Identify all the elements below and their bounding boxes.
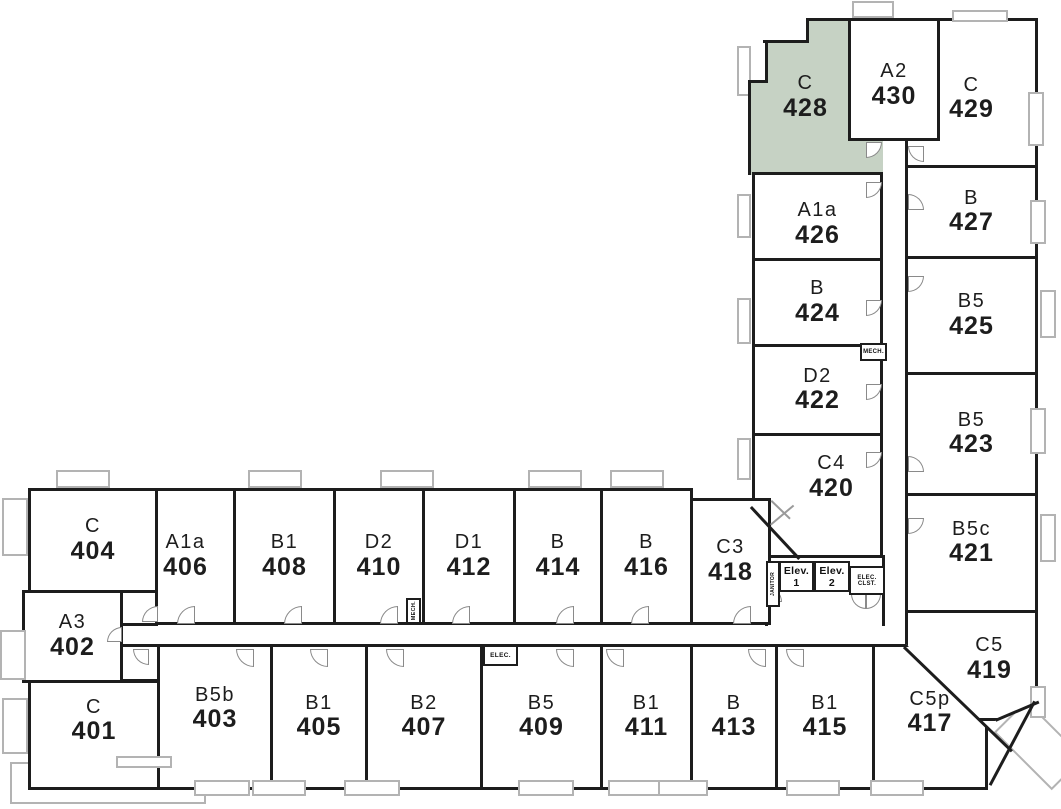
window	[1040, 290, 1056, 338]
window	[194, 780, 250, 796]
window	[952, 10, 1008, 22]
mech-closet-upper: MECH.	[860, 343, 887, 361]
unit-number: 413	[712, 714, 757, 741]
window	[56, 470, 110, 488]
window	[610, 470, 664, 488]
unit-number: 406	[163, 554, 208, 581]
window	[344, 780, 400, 796]
balcony-top	[852, 1, 894, 18]
window	[380, 470, 434, 488]
unit-type: B5b	[193, 685, 238, 707]
wall	[763, 40, 809, 43]
unit-number: 428	[783, 95, 828, 122]
window	[608, 780, 662, 796]
unit-number: 411	[625, 714, 668, 741]
window	[870, 780, 924, 796]
unit-406[interactable]: A1a406	[155, 488, 236, 625]
unit-label: C401	[72, 697, 117, 746]
unit-label: C429	[949, 75, 994, 124]
elevator-1: Elev. 1	[779, 561, 814, 592]
unit-426[interactable]: A1a426	[752, 172, 883, 261]
mech-closet-lower: MECH.	[406, 598, 421, 624]
unit-type: A2	[872, 61, 917, 83]
unit-425[interactable]: B5425	[905, 256, 1038, 375]
unit-type: B1	[262, 532, 307, 554]
unit-label: A1a426	[795, 200, 840, 249]
unit-number: 403	[193, 706, 238, 733]
floor-plan: C429C428A2430A1a426B424D2422C4420B427B54…	[0, 0, 1061, 809]
unit-label: C5419	[967, 635, 1012, 684]
unit-401[interactable]: C401	[28, 680, 160, 790]
unit-421[interactable]: B5c421	[905, 493, 1038, 613]
unit-type: B5	[949, 410, 994, 432]
unit-430[interactable]: A2430	[848, 18, 940, 141]
unit-number: 425	[949, 313, 994, 340]
unit-type: B	[949, 188, 994, 210]
window	[248, 470, 302, 488]
window	[737, 438, 751, 480]
unit-number: 409	[519, 714, 564, 741]
unit-label: B414	[536, 532, 581, 581]
unit-label: B1415	[803, 693, 848, 742]
unit-type: A1a	[163, 532, 208, 554]
unit-type: C4	[809, 453, 854, 475]
unit-label: C404	[71, 516, 116, 565]
unit-411[interactable]: B1411	[600, 644, 693, 790]
unit-407[interactable]: B2407	[365, 644, 483, 790]
unit-label: D1412	[447, 532, 492, 581]
elevator-2-label: Elev. 2	[816, 565, 848, 589]
window	[786, 780, 840, 796]
window	[1030, 200, 1046, 244]
unit-420[interactable]: C4420	[752, 433, 883, 558]
unit-type: B	[624, 532, 669, 554]
unit-number: 401	[72, 718, 117, 745]
unit-number: 408	[262, 554, 307, 581]
unit-label: B1408	[262, 532, 307, 581]
unit-type: B1	[297, 693, 342, 715]
unit-number: 424	[795, 300, 840, 327]
window	[1030, 408, 1046, 454]
elec-clst-label: ELEC. CLST.	[851, 575, 883, 587]
elec-closet-label: ELEC.	[490, 652, 511, 659]
unit-type: D2	[795, 366, 840, 388]
unit-type: B1	[625, 693, 668, 715]
unit-type: B2	[402, 693, 447, 715]
unit-number: 430	[872, 83, 917, 110]
unit-type: B5	[519, 693, 564, 715]
unit-number: 402	[50, 634, 95, 661]
window	[737, 298, 751, 344]
unit-number: 418	[708, 559, 753, 586]
window	[528, 470, 582, 488]
wall	[748, 80, 768, 83]
unit-type: B	[536, 532, 581, 554]
unit-416[interactable]: B416	[600, 488, 693, 625]
janitor-closet: JANITOR	[766, 561, 780, 607]
unit-number: 412	[447, 554, 492, 581]
unit-label: B5425	[949, 291, 994, 340]
unit-type: B	[712, 693, 757, 715]
window	[252, 780, 306, 796]
unit-label: B1411	[625, 693, 668, 742]
unit-type: B5c	[949, 519, 994, 541]
unit-424[interactable]: B424	[752, 258, 883, 347]
elevator-2: Elev. 2	[814, 561, 850, 592]
unit-405[interactable]: B1405	[270, 644, 368, 790]
window	[658, 780, 708, 796]
unit-type: C	[72, 697, 117, 719]
unit-label: B2407	[402, 693, 447, 742]
unit-number: 407	[402, 714, 447, 741]
unit-label: C428	[783, 73, 828, 122]
unit-label: B424	[795, 278, 840, 327]
unit-type: C	[71, 516, 116, 538]
wall	[806, 18, 851, 21]
mech-closet-lower-label: MECH.	[411, 601, 417, 620]
unit-type: D1	[447, 532, 492, 554]
unit-type: C5p	[908, 689, 953, 711]
unit-number: 423	[949, 431, 994, 458]
unit-number: 410	[357, 554, 402, 581]
unit-label: B427	[949, 188, 994, 237]
window	[1028, 92, 1044, 146]
elec-closet: ELEC.	[483, 645, 518, 666]
window	[0, 630, 26, 680]
unit-number: 404	[71, 538, 116, 565]
unit-412[interactable]: D1412	[422, 488, 516, 625]
unit-number: 417	[908, 710, 953, 737]
unit-type: C	[783, 73, 828, 95]
unit-403[interactable]: B5b403	[157, 644, 273, 790]
window	[2, 498, 28, 556]
unit-type: B1	[803, 693, 848, 715]
unit-label: A1a406	[163, 532, 208, 581]
unit-number: 405	[297, 714, 342, 741]
unit-label: A3402	[50, 612, 95, 661]
unit-type: C3	[708, 537, 753, 559]
unit-number: 414	[536, 554, 581, 581]
unit-label: D2422	[795, 366, 840, 415]
unit-label: B5b403	[193, 685, 238, 734]
unit-type: A1a	[795, 200, 840, 222]
unit-number: 416	[624, 554, 669, 581]
unit-type: B	[795, 278, 840, 300]
unit-type: C5	[967, 635, 1012, 657]
unit-label: B5c421	[949, 519, 994, 568]
unit-number: 427	[949, 209, 994, 236]
unit-label: B416	[624, 532, 669, 581]
unit-label: A2430	[872, 61, 917, 110]
unit-label: D2410	[357, 532, 402, 581]
unit-label: B413	[712, 693, 757, 742]
unit-number: 415	[803, 714, 848, 741]
unit-number: 429	[949, 96, 994, 123]
elevator-1-label: Elev. 1	[781, 565, 812, 589]
wall	[748, 80, 751, 175]
window	[116, 756, 172, 768]
unit-label: B1405	[297, 693, 342, 742]
window	[1040, 514, 1056, 562]
unit-label: B5423	[949, 410, 994, 459]
unit-427[interactable]: B427	[905, 165, 1038, 259]
unit-number: 426	[795, 222, 840, 249]
unit-type: B5	[949, 291, 994, 313]
elec-clst: ELEC. CLST.	[849, 566, 885, 595]
unit-423[interactable]: B5423	[905, 372, 1038, 496]
unit-label: C5p417	[908, 689, 953, 738]
janitor-closet-label: JANITOR	[770, 572, 776, 596]
unit-number: 422	[795, 387, 840, 414]
wall	[765, 40, 768, 83]
unit-number: 421	[949, 540, 994, 567]
unit-414[interactable]: B414	[513, 488, 603, 625]
unit-type: D2	[357, 532, 402, 554]
unit-type: A3	[50, 612, 95, 634]
unit-number: 419	[967, 657, 1012, 684]
window	[737, 194, 751, 238]
unit-415[interactable]: B1415	[775, 644, 875, 790]
window	[518, 780, 574, 796]
unit-type: C	[949, 75, 994, 97]
unit-label: B5409	[519, 693, 564, 742]
unit-label: C3418	[708, 537, 753, 586]
unit-408[interactable]: B1408	[233, 488, 336, 625]
unit-404[interactable]: C404	[28, 488, 158, 593]
mech-closet-upper-label: MECH.	[863, 349, 884, 355]
window	[2, 698, 28, 754]
unit-number: 420	[809, 475, 854, 502]
unit-label: C4420	[809, 453, 854, 502]
